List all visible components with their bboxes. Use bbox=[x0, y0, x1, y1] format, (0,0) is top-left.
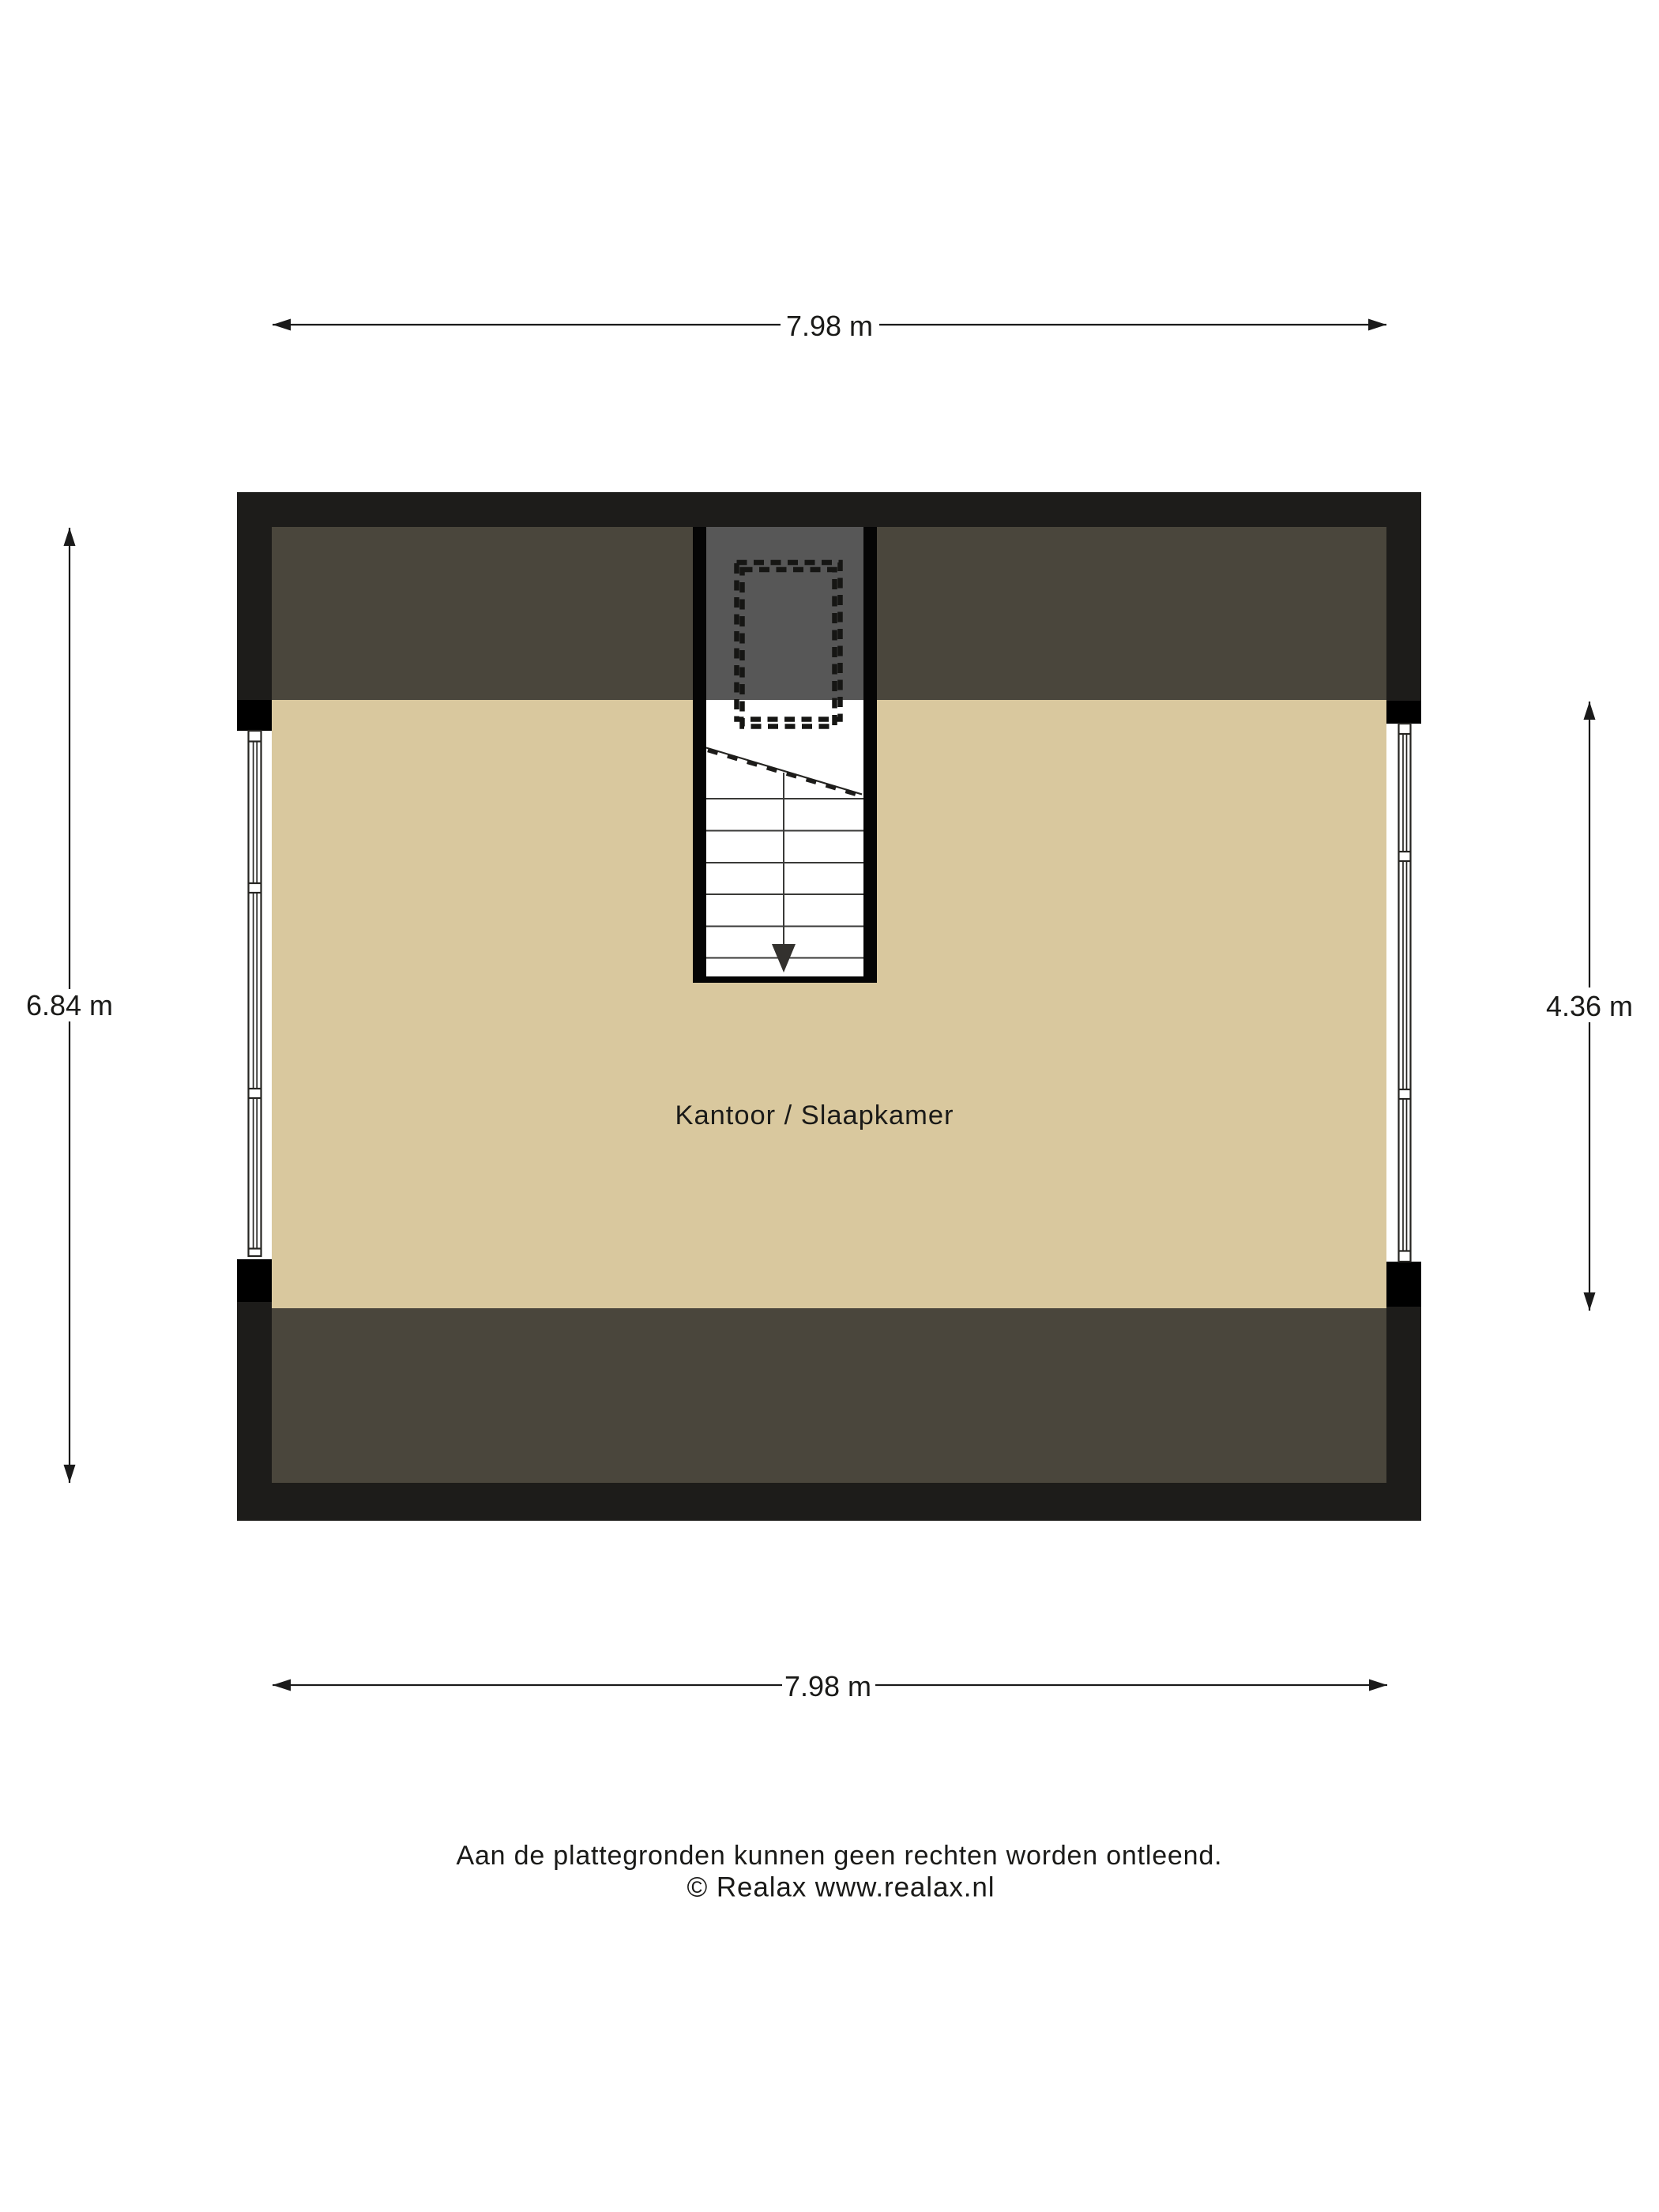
svg-text:7.98 m: 7.98 m bbox=[786, 310, 873, 342]
svg-text:Kantoor / Slaapkamer: Kantoor / Slaapkamer bbox=[675, 1100, 954, 1130]
svg-text:4.36 m: 4.36 m bbox=[1546, 990, 1633, 1022]
svg-text:7.98 m: 7.98 m bbox=[784, 1670, 871, 1702]
svg-text:© Realax www.realax.nl: © Realax www.realax.nl bbox=[687, 1872, 995, 1903]
svg-text:Aan de plattegronden kunnen ge: Aan de plattegronden kunnen geen rechten… bbox=[457, 1841, 1222, 1871]
svg-text:6.84 m: 6.84 m bbox=[26, 989, 113, 1021]
